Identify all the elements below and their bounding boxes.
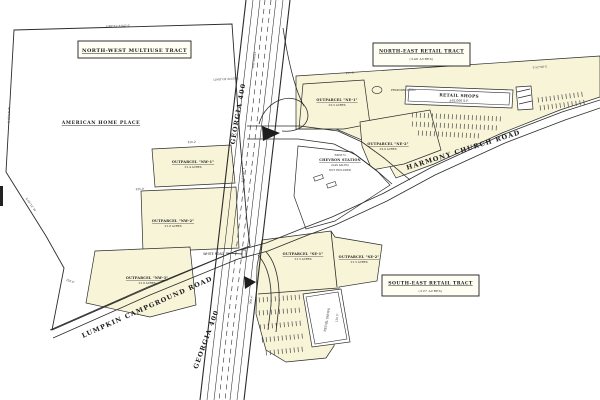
outparcel-nw2-label: OUTPARCEL "NW-2" [152, 219, 194, 223]
southeast-tract-acres: (±27 ACRES) [419, 289, 443, 293]
ne-hatched-structure [516, 86, 533, 110]
chevron-label-1: EXIST'G [334, 153, 345, 157]
dimension-label: N 01°40' E [240, 167, 245, 182]
outparcel-nw1-label: OUTPARCEL "NW-1" [172, 160, 214, 164]
georgia-400-label-south: GEORGIA 400 [192, 309, 221, 370]
outparcel-se2-acres: ±1.5 ACRES [350, 260, 367, 264]
dimension-label: 120.0' [335, 313, 340, 322]
outparcel-nw2-acres: ±1.8 ACRES [164, 224, 181, 228]
northeast-tract-box [373, 43, 470, 66]
outparcel-se2-label: OUTPARCEL "SE-2" [339, 255, 380, 259]
white-road-label: WHITE ROAD [203, 252, 224, 256]
northeast-tract-title: NORTH-EAST RETAIL TRACT [379, 49, 464, 55]
northwest-tract-title: NORTH-WEST MULTIUSE TRACT [82, 48, 187, 54]
limit-of-access-label: LIMIT OF ACCESS [213, 76, 238, 81]
chevron-label-3: (GAS SALES) [331, 163, 349, 167]
dimension-label: R/W VARIES [251, 51, 257, 68]
outparcel-se1-acres: ±1.5 ACRES [294, 257, 311, 261]
proposed-pond-label: PROPOSED POND [391, 88, 416, 92]
chevron-label-2: CHEVRON STATION [319, 158, 361, 162]
outparcel-nw1-acres: ±1.4 ACRES [184, 165, 201, 169]
dimension-label: S 88°21' E 642.0' [106, 24, 131, 29]
dimension-label: 310.2' [188, 140, 197, 144]
chevron-label-4: NOT INCLUDED [329, 168, 351, 172]
dimension-label: 150.0' [66, 278, 76, 285]
northeast-tract-acres: (±48 ACRES) [410, 57, 434, 61]
scan-smudge [0, 186, 3, 206]
outparcel-ne1-label: OUTPARCEL "NE-1" [316, 98, 357, 102]
white-road-marker [242, 250, 246, 257]
outparcel-nw3-label: OUTPARCEL "NW-3" [126, 276, 168, 280]
southeast-tract-title: SOUTH-EAST RETAIL TRACT [388, 281, 473, 287]
site-plan-drawing: NORTH-WEST MULTIUSE TRACT NORTH-EAST RET… [0, 0, 600, 400]
outparcel-ne2-label: OUTPARCEL "NE-2" [367, 142, 408, 146]
dimension-label: 308.4' [248, 295, 254, 305]
dimension-label: 225.0' [136, 187, 145, 191]
site-plan-canvas: NORTH-WEST MULTIUSE TRACT NORTH-EAST RET… [0, 0, 600, 400]
outparcel-nw3-acres: ±1.6 ACRES [138, 281, 155, 285]
dimension-label: N 02°18' W [7, 107, 12, 123]
american-home-place-label: AMERICAN HOME PLACE [61, 120, 140, 126]
outparcel-ne1-acres: ±2.5 ACRES [328, 103, 345, 107]
ne-retail-building-size: ±62,000 S.F. [449, 98, 469, 103]
dimension-label: 417.3' [345, 71, 354, 75]
outparcel-ne2-acres: ±2.0 ACRES [379, 147, 396, 151]
outparcel-se1-label: OUTPARCEL "SE-1" [283, 252, 324, 256]
